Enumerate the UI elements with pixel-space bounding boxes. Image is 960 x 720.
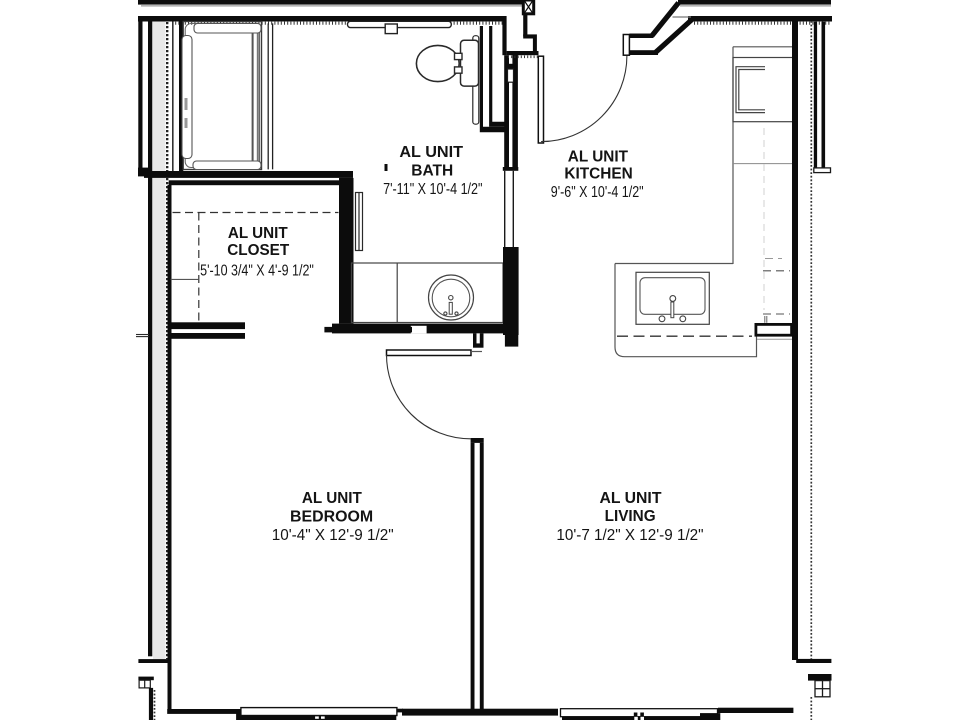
- svg-text:10'-4" X 12'-9 1/2": 10'-4" X 12'-9 1/2": [272, 527, 394, 544]
- svg-text:BEDROOM: BEDROOM: [290, 509, 373, 526]
- svg-text:CLOSET: CLOSET: [227, 242, 289, 259]
- svg-text:AL UNIT: AL UNIT: [302, 490, 362, 507]
- svg-text:10'-7 1/2" X 12'-9 1/2": 10'-7 1/2" X 12'-9 1/2": [556, 527, 703, 544]
- svg-text:5'-10 3/4" X 4'-9 1/2": 5'-10 3/4" X 4'-9 1/2": [200, 262, 314, 279]
- svg-text:AL UNIT: AL UNIT: [228, 225, 288, 242]
- svg-text:AL UNIT: AL UNIT: [600, 490, 662, 507]
- svg-text:AL UNIT: AL UNIT: [568, 149, 628, 166]
- svg-text:KITCHEN: KITCHEN: [564, 166, 632, 183]
- svg-text:9'-6" X 10'-4 1/2": 9'-6" X 10'-4 1/2": [551, 184, 644, 201]
- svg-text:AL UNIT: AL UNIT: [399, 144, 463, 161]
- svg-text:LIVING: LIVING: [605, 508, 656, 525]
- svg-text:BATH: BATH: [411, 162, 453, 179]
- svg-text:7'-11" X 10'-4 1/2": 7'-11" X 10'-4 1/2": [383, 181, 482, 198]
